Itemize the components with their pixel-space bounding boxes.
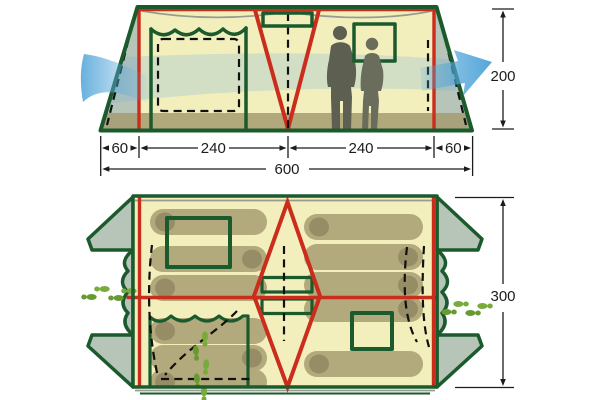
sleeping-bag (304, 296, 423, 322)
awning-flap-bottom-left (88, 335, 133, 387)
dimension-label: 240 (201, 140, 226, 157)
dimension-total-width: 600 (102, 161, 471, 178)
dimension-left-vestibule: 60 (102, 140, 138, 157)
sleeping-bag (304, 214, 423, 240)
dimension-height: 200 (490, 9, 515, 129)
dimension-right-room: 240 (290, 140, 433, 157)
footprints-icon-right (441, 301, 493, 316)
dimension-label: 600 (274, 161, 299, 178)
dimension-right-vestibule: 60 (436, 140, 472, 157)
sleeping-bag (304, 351, 423, 377)
awning-flap-bottom-right (437, 335, 482, 387)
awning-flap-top-left (88, 197, 133, 250)
floor-plan-view (81, 196, 493, 400)
dimension-label: 60 (445, 140, 462, 157)
dimension-label: 240 (348, 140, 373, 157)
awning-flap-top-right (437, 197, 482, 250)
tent-diagram-canvas: 60 240 240 60 600 (0, 0, 600, 400)
dimension-label: 200 (490, 68, 515, 85)
dimension-label: 60 (111, 140, 128, 157)
tent-diagram: 60 240 240 60 600 (0, 0, 600, 400)
dimension-label: 300 (490, 288, 515, 305)
front-elevation-view (81, 7, 492, 131)
dimension-left-room: 240 (141, 140, 287, 157)
